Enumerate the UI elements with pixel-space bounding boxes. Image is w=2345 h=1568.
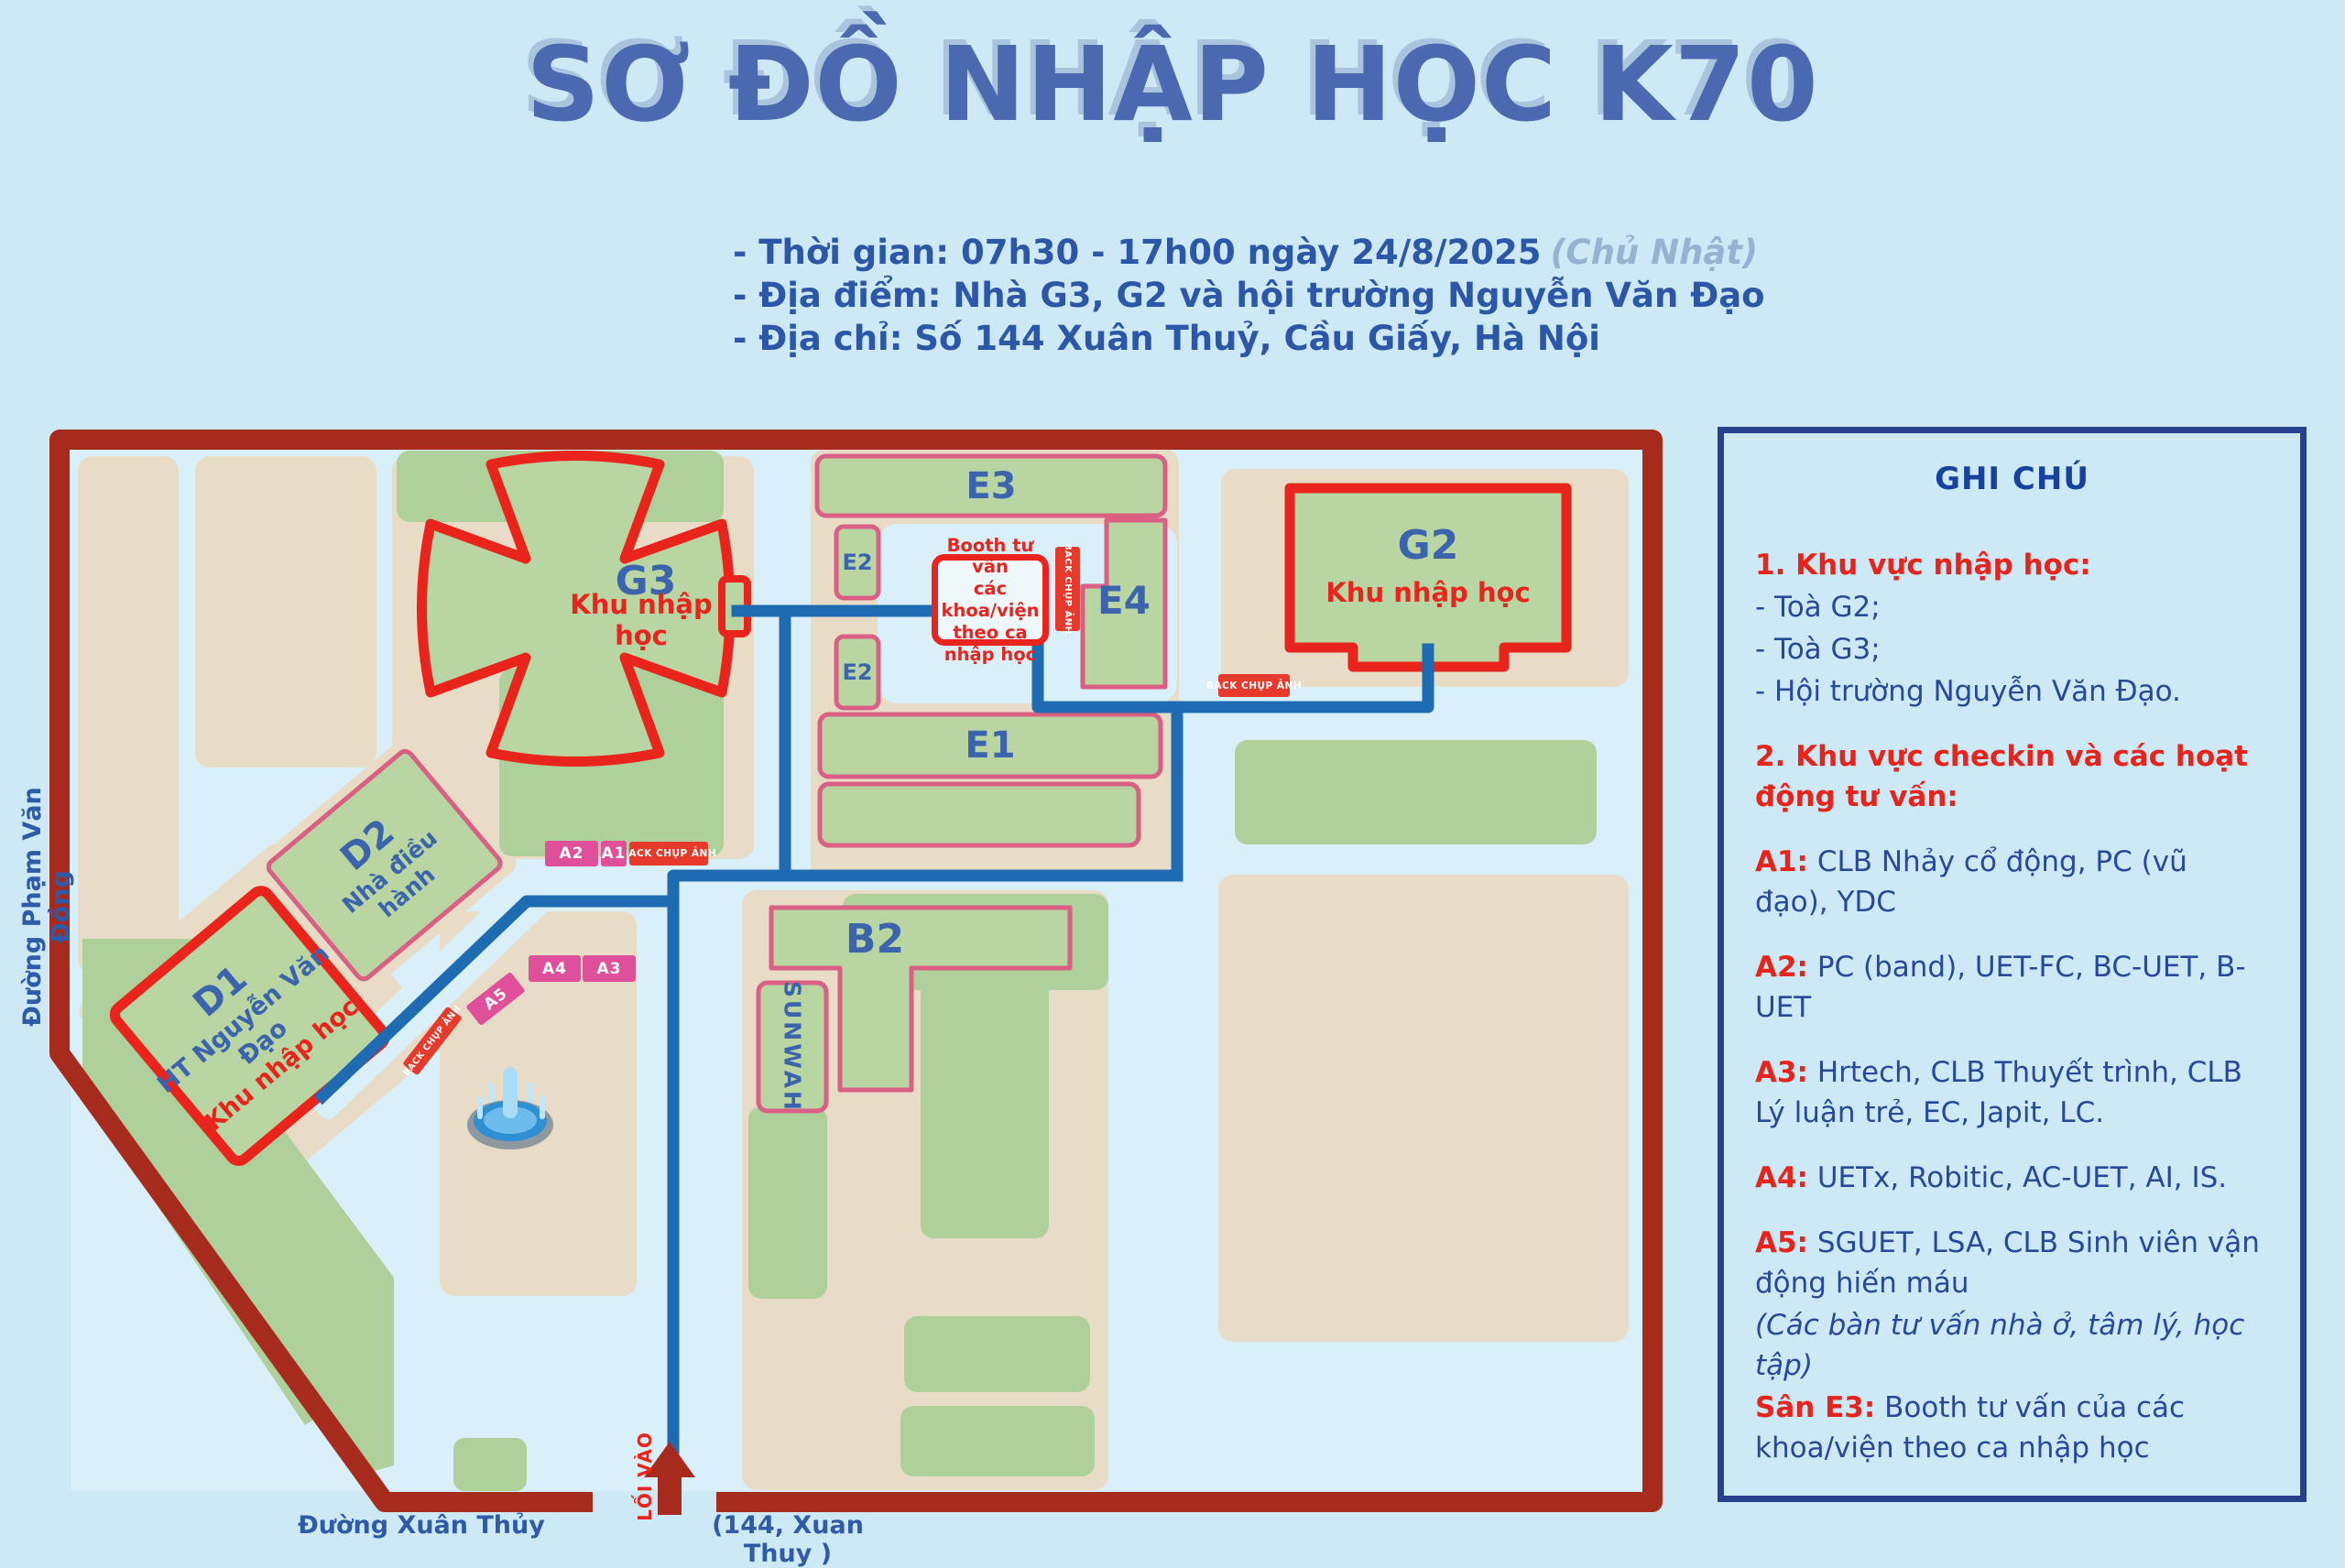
legend-title: GHI CHÚ xyxy=(1755,461,2269,497)
label-e1: E1 xyxy=(820,714,1161,777)
badge-a4: A4 xyxy=(529,955,581,982)
label-e3: E3 xyxy=(817,456,1165,516)
legend-section1-head: 1. Khu vực nhập học: xyxy=(1755,545,2269,585)
street-pham-van-dong: Đường Phạm Văn Đồng xyxy=(18,760,49,1053)
legend-entry-san-e3: Sân E3: Booth tư vấn của các khoa/viện t… xyxy=(1755,1388,2269,1468)
legend-item-g3: - Toà G3; xyxy=(1755,629,2269,670)
label-g2: G2 xyxy=(1291,520,1565,570)
label-b2: B2 xyxy=(815,916,934,962)
label-e4: E4 xyxy=(1083,568,1165,632)
legend-entry-a2: A2: PC (band), UET-FC, BC-UET, B-UET xyxy=(1755,947,2269,1028)
badge-a2: A2 xyxy=(545,841,598,866)
street-address-144: (144, Xuan Thuy ) xyxy=(678,1511,898,1568)
backdrop-badge-g2: BACK CHỤP ẢNH xyxy=(1218,674,1290,697)
info-line-place: - Địa điểm: Nhà G3, G2 và hội trường Ngu… xyxy=(733,274,1765,317)
label-g2-sub: Khu nhập học xyxy=(1291,577,1565,608)
badge-a3: A3 xyxy=(583,955,636,982)
legend-entry-a5: A5: SGUET, LSA, CLB Sinh viên vận động h… xyxy=(1755,1223,2269,1303)
label-g3-sub: Khu nhập học xyxy=(540,604,742,636)
info-line-time: - Thời gian: 07h30 - 17h00 ngày 24/8/202… xyxy=(733,231,1765,274)
label-e2a: E2 xyxy=(836,527,878,598)
booth-advice-box: Booth tư vấn các khoa/viện theo ca nhập … xyxy=(932,554,1049,646)
street-xuan-thuy: Đường Xuân Thủy xyxy=(284,1511,559,1540)
event-info: - Thời gian: 07h30 - 17h00 ngày 24/8/202… xyxy=(733,231,1765,360)
page-title: SƠ ĐỒ NHẬP HỌC K70 xyxy=(0,26,2345,145)
legend-section2-head: 2. Khu vực checkin và các hoạt động tư v… xyxy=(1755,736,2269,817)
legend-entry-a3: A3: Hrtech, CLB Thuyết trình, CLB Lý luậ… xyxy=(1755,1052,2269,1133)
entrance-label: LỐI VÀO xyxy=(634,1421,656,1531)
legend-entry-a1: A1: CLB Nhảy cổ động, PC (vũ đạo), YDC xyxy=(1755,842,2269,922)
legend-item-htnvd: - Hội trường Nguyễn Văn Đạo. xyxy=(1755,671,2269,712)
backdrop-badge-e4: BACK CHỤP ẢNH xyxy=(1055,547,1080,631)
legend-entry-a4: A4: UETx, Robitic, AC-UET, AI, IS. xyxy=(1755,1158,2269,1198)
label-e2b: E2 xyxy=(836,637,878,708)
info-line-address: - Địa chỉ: Số 144 Xuân Thuỷ, Cầu Giấy, H… xyxy=(733,317,1765,360)
legend-item-g2: - Toà G2; xyxy=(1755,587,2269,627)
backdrop-badge-a1: BACK CHỤP ẢNH xyxy=(629,842,708,866)
label-sunwah: SUNWAH xyxy=(758,983,826,1111)
info-note: (Chủ Nhật) xyxy=(1551,233,1759,272)
legend-entry-a5-note: (Các bàn tư vấn nhà ở, tâm lý, học tập) xyxy=(1755,1305,2269,1386)
building-e1b-shape xyxy=(820,784,1139,845)
badge-a1: A1 xyxy=(601,841,627,866)
legend-box: GHI CHÚ 1. Khu vực nhập học: - Toà G2; -… xyxy=(1718,427,2307,1502)
